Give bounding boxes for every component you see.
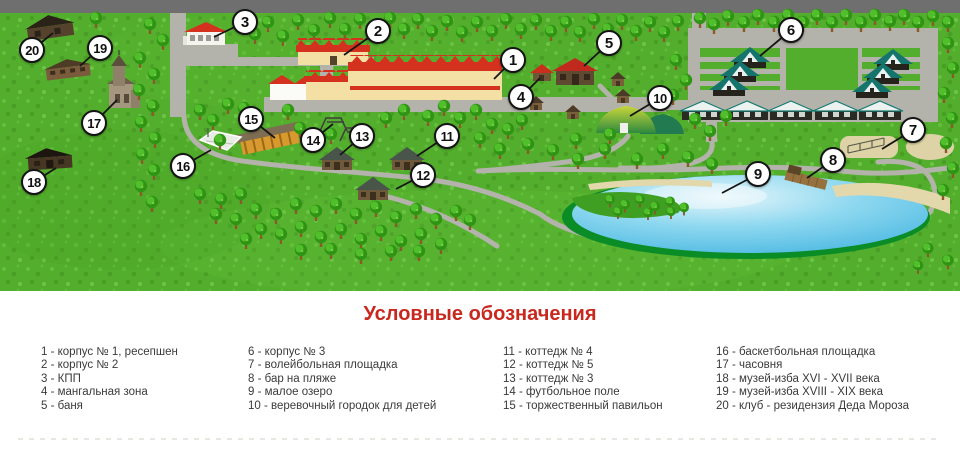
legend-item: 16 - баскетбольная площадка — [716, 346, 909, 359]
legend-item: 11 - коттедж № 4 — [503, 346, 663, 359]
map-marker-7[interactable]: 7 — [900, 117, 926, 143]
map-marker-6[interactable]: 6 — [778, 17, 804, 43]
map-illustration — [0, 0, 960, 291]
dotted-rule — [18, 438, 942, 440]
legend-item: 3 - КПП — [41, 373, 178, 386]
legend: Условные обозначения 1 - корпус № 1, рес… — [0, 291, 960, 453]
map-marker-2[interactable]: 2 — [365, 18, 391, 44]
building-korpus-1-mid-wing — [304, 70, 352, 100]
legend-item: 15 - торжественный павильон — [503, 400, 663, 413]
map-marker-13[interactable]: 13 — [349, 123, 375, 149]
map-marker-16[interactable]: 16 — [170, 153, 196, 179]
map-marker-10[interactable]: 10 — [647, 85, 673, 111]
resort-map-page: 1234567891011121314151617181920 Условные… — [0, 0, 960, 453]
legend-column-4: 16 - баскетбольная площадка17 - часовня1… — [716, 346, 909, 413]
map-marker-15[interactable]: 15 — [238, 106, 264, 132]
map-marker-20[interactable]: 20 — [19, 37, 45, 63]
legend-item: 4 - мангальная зона — [41, 386, 178, 399]
legend-item: 7 - волейбольная площадка — [248, 359, 436, 372]
map-marker-17[interactable]: 17 — [81, 110, 107, 136]
map-marker-3[interactable]: 3 — [232, 9, 258, 35]
legend-item: 5 - баня — [41, 400, 178, 413]
map-marker-14[interactable]: 14 — [300, 127, 326, 153]
legend-item: 12 - коттедж № 5 — [503, 359, 663, 372]
legend-column-1: 1 - корпус № 1, ресепшен2 - корпус № 23 … — [41, 346, 178, 413]
map-marker-19[interactable]: 19 — [87, 35, 113, 61]
legend-item: 17 - часовня — [716, 359, 909, 372]
legend-item: 2 - корпус № 2 — [41, 359, 178, 372]
map-marker-5[interactable]: 5 — [596, 30, 622, 56]
map-marker-9[interactable]: 9 — [745, 161, 771, 187]
map-marker-12[interactable]: 12 — [410, 162, 436, 188]
legend-item: 13 - коттедж № 3 — [503, 373, 663, 386]
legend-item: 10 - веревочный городок для детей — [248, 400, 436, 413]
map-marker-4[interactable]: 4 — [508, 84, 534, 110]
legend-column-2: 6 - корпус № 37 - волейбольная площадка8… — [248, 346, 436, 413]
legend-item: 20 - клуб - резидензия Деда Мороза — [716, 400, 909, 413]
map-marker-11[interactable]: 11 — [434, 123, 460, 149]
legend-column-3: 11 - коттедж № 412 - коттедж № 513 - кот… — [503, 346, 663, 413]
legend-item: 8 - бар на пляже — [248, 373, 436, 386]
legend-item: 14 - футбольное поле — [503, 386, 663, 399]
map-marker-1[interactable]: 1 — [500, 47, 526, 73]
legend-item: 18 - музей-изба XVI - XVII века — [716, 373, 909, 386]
legend-item: 19 - музей-изба XVIII - XIX века — [716, 386, 909, 399]
legend-item: 9 - малое озеро — [248, 386, 436, 399]
map-marker-18[interactable]: 18 — [21, 169, 47, 195]
building-korpus-1 — [348, 55, 502, 100]
map-marker-8[interactable]: 8 — [820, 147, 846, 173]
legend-title: Условные обозначения — [0, 303, 960, 326]
resort-map: 1234567891011121314151617181920 — [0, 0, 960, 291]
legend-item: 1 - корпус № 1, ресепшен — [41, 346, 178, 359]
legend-item: 6 - корпус № 3 — [248, 346, 436, 359]
